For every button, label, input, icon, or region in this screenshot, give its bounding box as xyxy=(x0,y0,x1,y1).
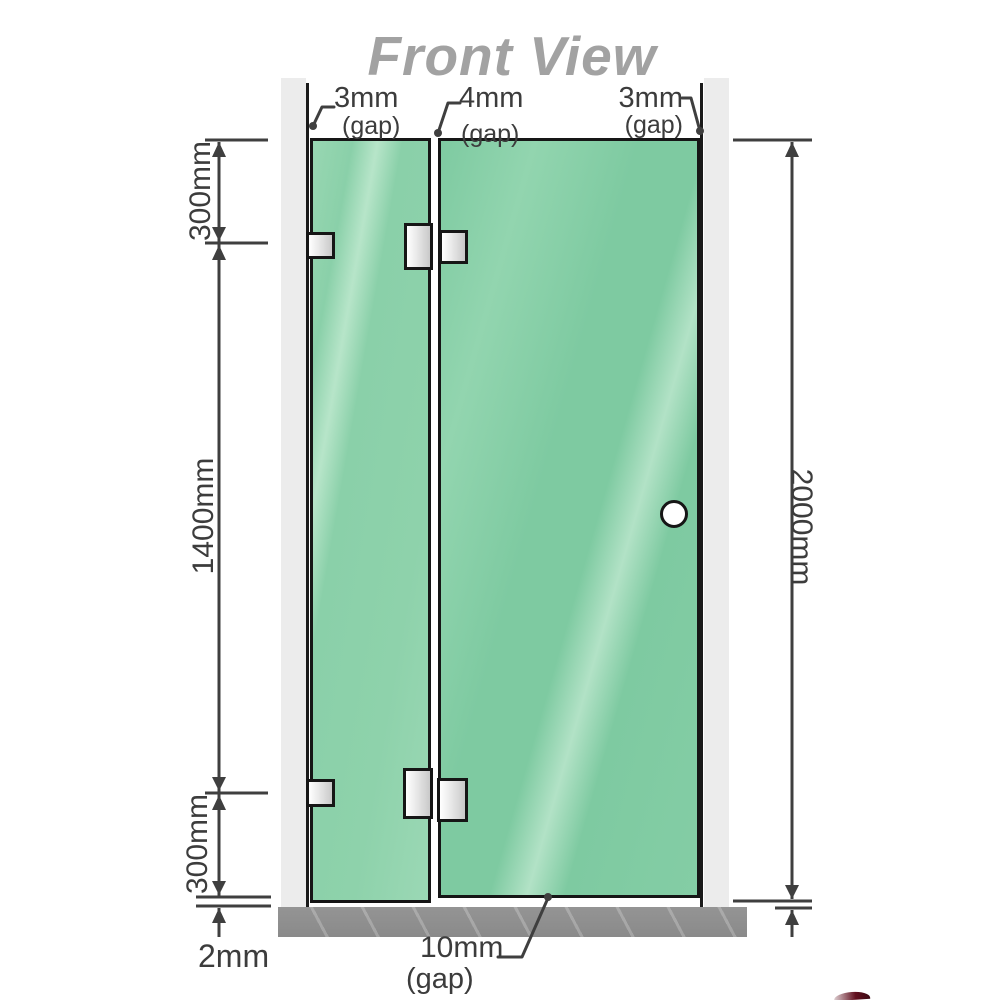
gap-value: 3mm xyxy=(619,84,683,113)
dimension-label-middle-1400mm: 1400mm xyxy=(187,458,221,575)
right-wall-inner-edge xyxy=(700,83,703,907)
top-hinge-door-plate xyxy=(439,230,468,264)
gap-note: (gap) xyxy=(406,965,503,994)
diagram-title: Front View xyxy=(367,24,656,88)
top-hinge-fixed-plate xyxy=(404,223,433,270)
gap-note: (gap) xyxy=(619,113,683,138)
left-wall xyxy=(281,78,306,907)
gap-label-top-right: 3mm (gap) xyxy=(619,84,683,138)
wall-bracket-bottom xyxy=(306,779,335,807)
corner-logo-mark xyxy=(834,991,870,1000)
front-view-diagram: Front View xyxy=(0,0,1000,1000)
gap-label-top-center: 4mm (gap) xyxy=(459,84,523,147)
bottom-hinge-door-plate xyxy=(437,778,468,822)
dimension-label-bottom-300mm: 300mm xyxy=(181,794,215,894)
floor-base xyxy=(278,907,747,937)
bottom-hinge-fixed-plate xyxy=(403,768,433,819)
right-wall xyxy=(704,78,729,907)
gap-value: 3mm xyxy=(334,84,400,113)
gap-value: 4mm xyxy=(459,84,523,113)
floor-gap-label-2mm: 2mm xyxy=(198,938,269,975)
gap-label-bottom: 10mm (gap) xyxy=(406,933,503,994)
dimension-label-top-300mm: 300mm xyxy=(184,141,218,241)
door-knob xyxy=(660,500,688,528)
gap-label-top-left: 3mm (gap) xyxy=(334,84,400,139)
gap-note: (gap) xyxy=(461,122,523,147)
dimension-label-height-2000mm: 2000mm xyxy=(784,469,818,586)
gap-value: 10mm xyxy=(420,933,503,963)
wall-bracket-top xyxy=(306,232,335,259)
gap-note: (gap) xyxy=(342,114,400,139)
